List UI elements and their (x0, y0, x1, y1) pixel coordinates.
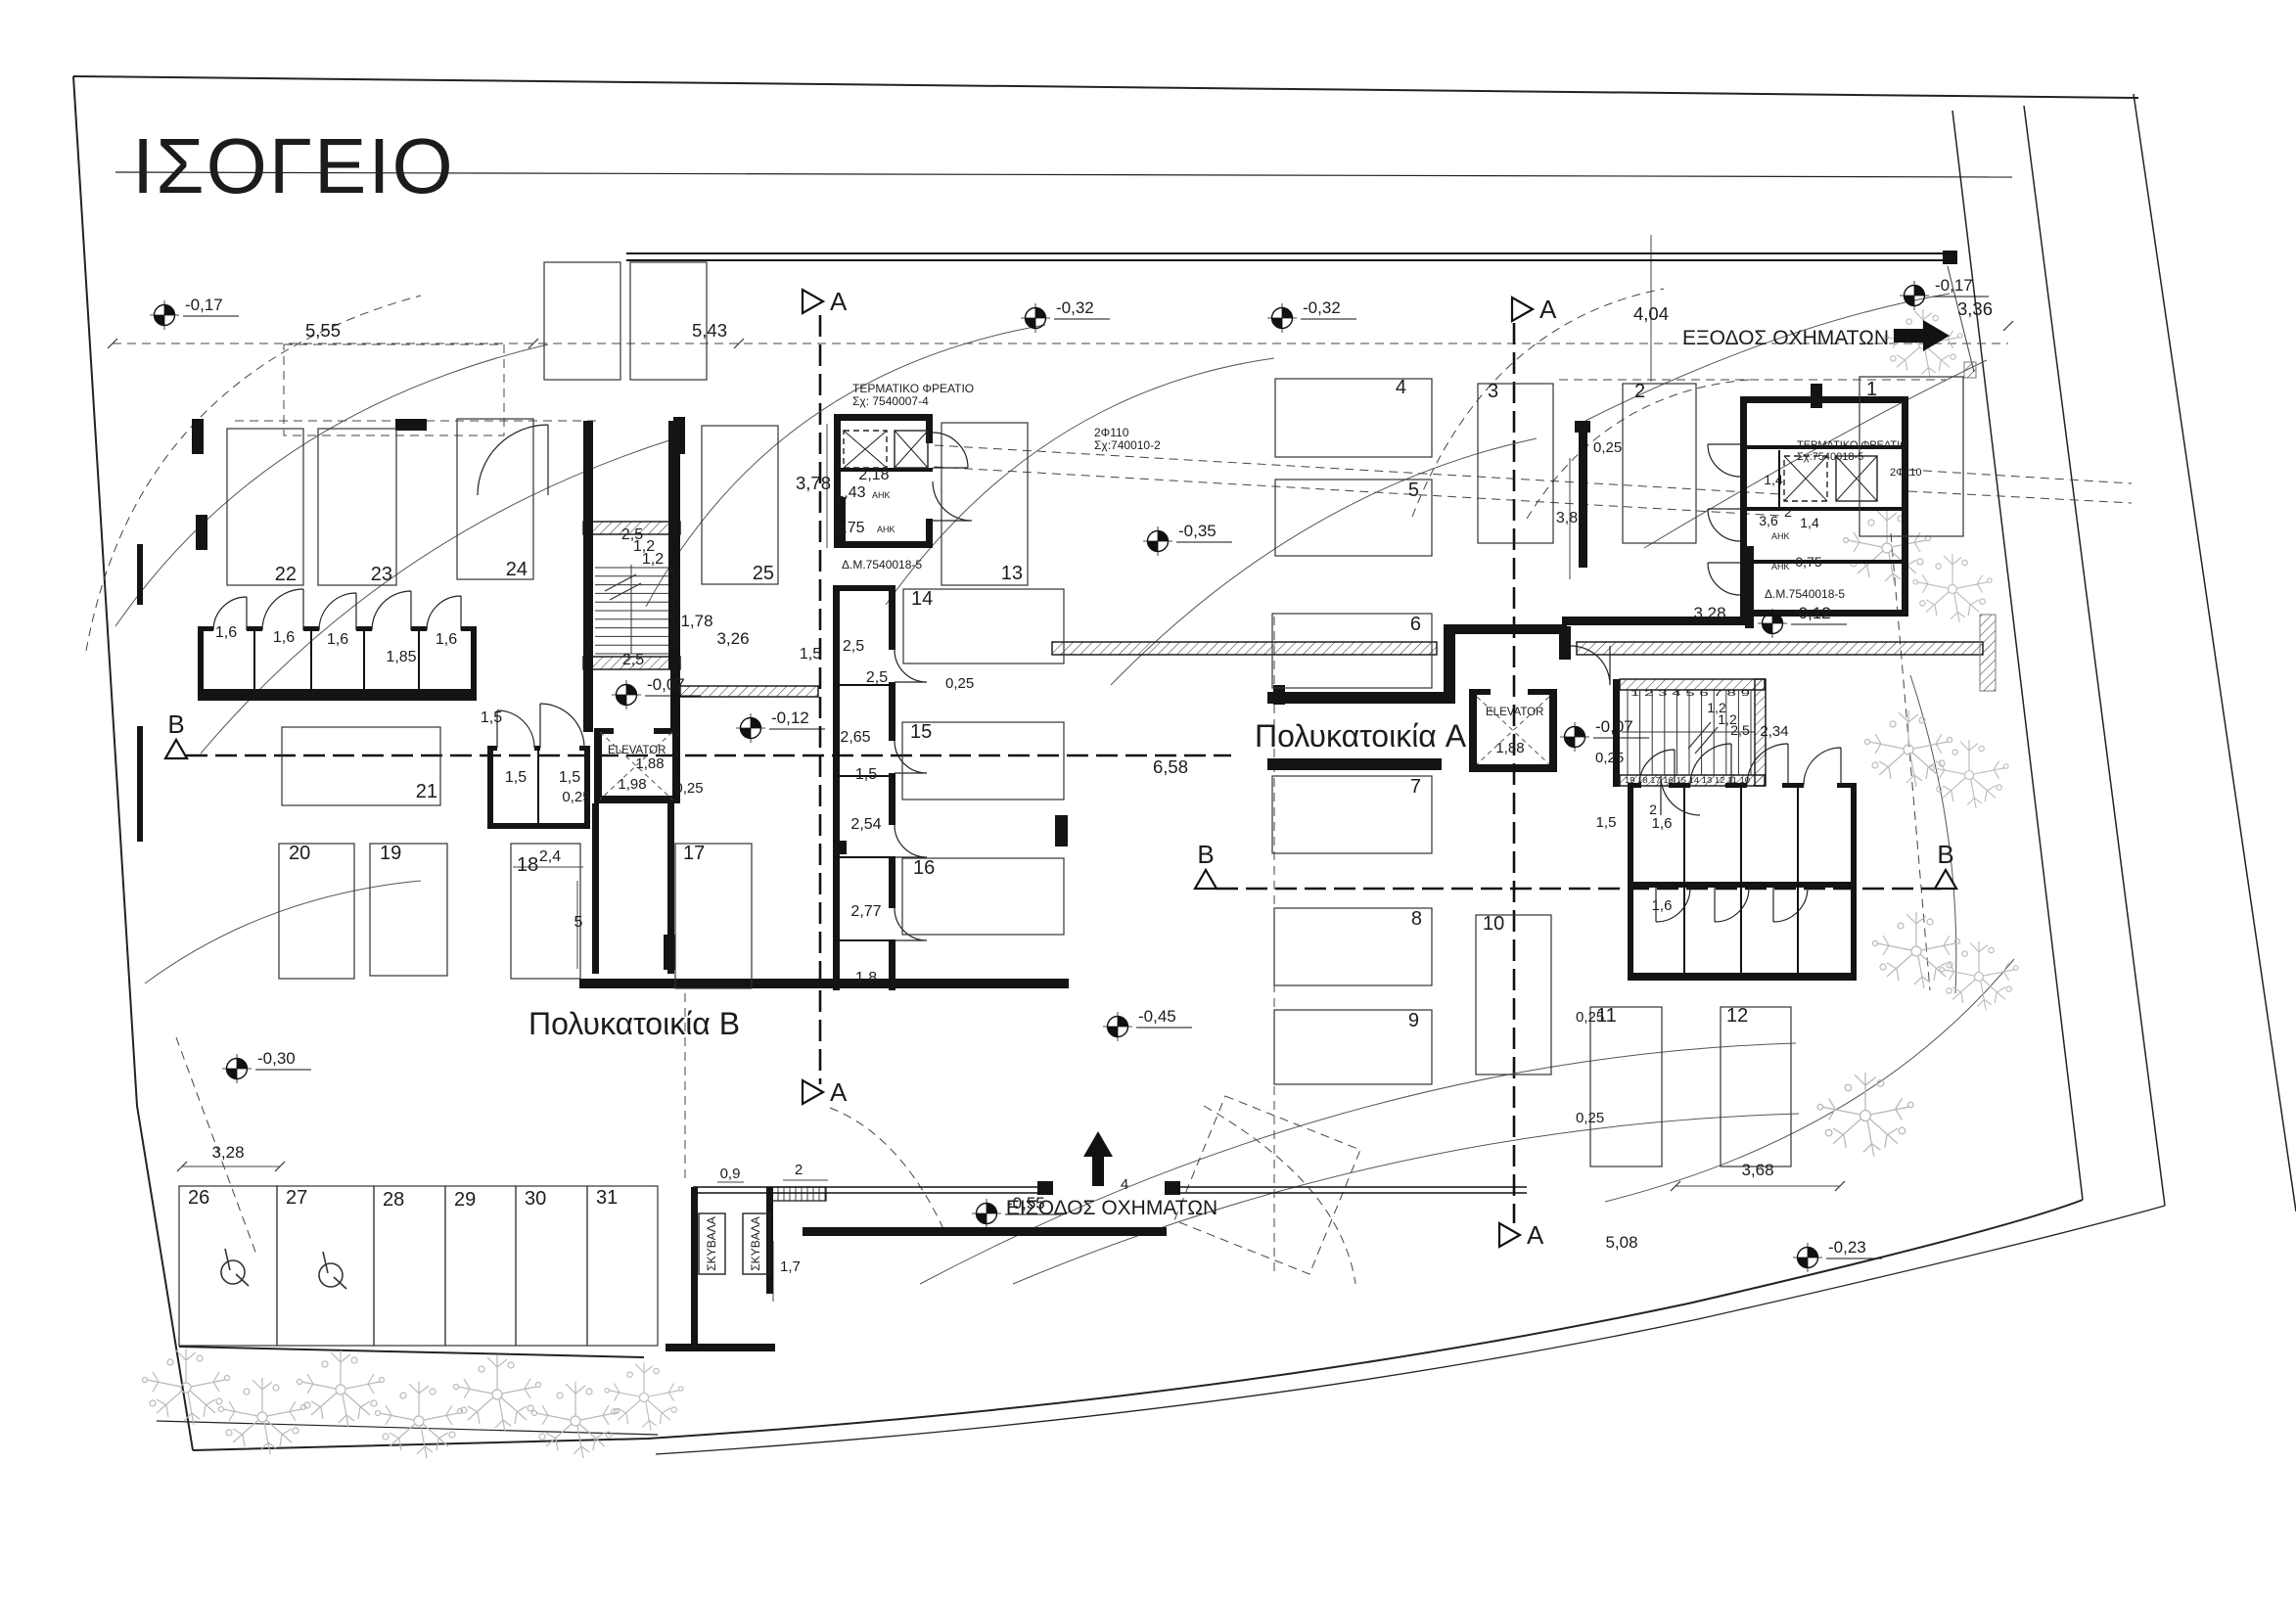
parking-space (179, 1186, 277, 1346)
ahk-label: ΑΗΚ (877, 525, 895, 534)
dimension-label: 0,25 (674, 780, 703, 797)
dimension-label: 2,65 (840, 729, 870, 746)
parking-space (1274, 908, 1432, 985)
garbage-room-label: ΣΚΥΒΑΛΑ (705, 1216, 718, 1270)
dimension-label: 3,26 (716, 629, 749, 648)
section-marker: B (1195, 840, 1217, 889)
parking-space (702, 426, 778, 584)
parking-number: 18 (517, 854, 538, 876)
dimension-label: 0,9 (720, 1166, 741, 1182)
dimension-label: 1,5 (505, 769, 527, 786)
dimension-label: 3,36 (1957, 298, 1993, 319)
spot-elevation-value: -0,45 (1138, 1007, 1176, 1026)
parking-number: 6 (1410, 614, 1421, 635)
building-b-label: Πολυκατοικία B (528, 1006, 740, 1041)
spot-elevation-icon (1143, 526, 1172, 556)
dimension-label: 4,04 (1633, 303, 1669, 324)
building-a-label: Πολυκατοικία A (1255, 718, 1467, 754)
section-marker: A (1512, 295, 1557, 324)
entrance-arrow-icon (1083, 1131, 1113, 1186)
dimension-label: 4 (1121, 1176, 1128, 1193)
dimension-label: 5,55 (305, 320, 341, 341)
exit-arrow-icon (1894, 320, 1950, 351)
terminal-shaft-ref: Σχ:7540018-5 (1797, 451, 1863, 463)
spot-elevation-value: -0,17 (1935, 276, 1973, 295)
dimension-label: 0,25 (1576, 1009, 1604, 1026)
svg-text:B: B (1937, 840, 1953, 869)
parking-number: 17 (683, 843, 705, 864)
dimension-label: 1,6 (1652, 815, 1673, 832)
parking-number: 30 (525, 1188, 546, 1210)
dimension-label: 2,5 (622, 652, 644, 668)
dimension-label: 1,6 (1652, 897, 1673, 914)
annotation-labels: ΤΕΡΜΑΤΙΚΟ ΦΡΕΑΤΙΟΣχ: 7540007-4Δ.Μ.754001… (586, 327, 1921, 1271)
dimension-label: 2 (1784, 504, 1792, 520)
terminal-shaft-ref: Σχ: 7540007-4 (852, 394, 929, 408)
parking-number: 2 (1634, 381, 1645, 402)
ahk-label: ΑΗΚ (872, 490, 891, 500)
tree-icon (298, 1350, 385, 1427)
dm-ref: Δ.Μ.7540018-5 (1765, 587, 1845, 601)
dimension-label: 1,6 (436, 631, 457, 648)
tree-icon (219, 1378, 306, 1454)
parking-number: 27 (286, 1187, 307, 1209)
svg-text:B: B (1197, 840, 1214, 869)
duct-ref: Σχ:740010-2 (1094, 438, 1161, 452)
parking-space (1623, 384, 1696, 543)
parking-space (1272, 776, 1432, 853)
section-markers: AAAABBB (165, 287, 1956, 1250)
svg-text:B: B (167, 709, 184, 739)
parking-number: 5 (1408, 480, 1419, 501)
spot-elevation-value: -0,32 (1056, 298, 1094, 317)
tree-icon (532, 1382, 620, 1458)
parking-space (1275, 379, 1432, 457)
parking-number: 31 (596, 1187, 618, 1209)
stair-step-numbers: 1 2 3 4 5 6 7 8 9 (1630, 689, 1751, 698)
tree-icon (1817, 1073, 1913, 1157)
section-marker: B (1935, 840, 1956, 889)
floor-plan-sheet: ΙΣΟΓΕΙΟ 12345678910111213141516171819202… (0, 0, 2296, 1601)
vehicle-exit-label: ΕΞΟΔΟΣ ΟΧΗΜΑΤΩΝ (1682, 327, 1889, 349)
dimension-label: 6,58 (1153, 756, 1188, 777)
parking-space (1721, 1007, 1791, 1166)
dimension-label: 1,7 (780, 1258, 801, 1275)
parking-space (318, 429, 396, 585)
dimension-label: 1,6 (273, 629, 295, 646)
spot-elevation-value: -0,07 (1595, 717, 1633, 736)
dimension-label: 2 (795, 1162, 803, 1178)
parking-number: 19 (380, 843, 401, 864)
parking-number: 23 (371, 564, 392, 585)
spot-elevation-icon (736, 713, 765, 743)
dimension-label: 0,25 (1595, 750, 1624, 766)
spot-elevation-icon (1267, 303, 1297, 333)
tree-icon (1873, 912, 1960, 988)
parking-number: 4 (1396, 377, 1406, 398)
dimension-label: 2,4 (539, 848, 561, 865)
parking-number: 29 (454, 1189, 476, 1211)
parking-space (675, 844, 752, 988)
dimension-label: 0,25 (1593, 439, 1622, 456)
parking-number: 24 (506, 559, 528, 580)
drawing-title: ΙΣΟΓΕΙΟ (132, 122, 455, 209)
spot-elevation-value: -0,23 (1828, 1238, 1866, 1257)
dimension-label: 1,5 (1596, 814, 1617, 831)
section-marker: B (165, 709, 187, 758)
spot-elevation-icon (972, 1199, 1001, 1228)
terminal-shaft-note: ΤΕΡΜΑΤΙΚΟ ΦΡΕΑΤΙΟ (852, 382, 974, 395)
dimension-label: 1,2 (642, 551, 664, 568)
dimension-label: 0,25 (562, 789, 590, 805)
tree-icon (376, 1382, 463, 1458)
dimension-label: 3,28 (211, 1143, 244, 1162)
dimension-label: 1,6 (327, 631, 348, 648)
parking-space (1478, 384, 1553, 543)
parking-number: 26 (188, 1187, 209, 1209)
parking-number: 15 (910, 721, 932, 743)
dimension-label: 2,54 (850, 816, 881, 833)
dimension-label: 3,28 (1693, 604, 1725, 622)
dimension-label: 1,5 (800, 646, 821, 663)
dimension-label: 2,18 (858, 467, 889, 483)
spot-elevation-value: -0,12 (1793, 604, 1831, 622)
dimension-label: 0,75 (1795, 554, 1821, 570)
parking-space (941, 423, 1028, 585)
dimension-label: 0,25 (945, 675, 974, 692)
tree-icon (1844, 509, 1931, 585)
parking-number: 20 (289, 843, 310, 864)
parking-space (457, 419, 533, 579)
dimension-label: 1,85 (386, 649, 416, 665)
vehicle-entrance-label: ΕΙΣΟΔΟΣ ΟΧΗΜΑΤΩΝ (1006, 1197, 1217, 1219)
tree-icon (454, 1355, 541, 1432)
duct-note: 2Φ110 (1094, 426, 1129, 439)
parking-space (1590, 1007, 1662, 1166)
svg-text:A: A (830, 1077, 848, 1107)
dimension-label: 1,6 (215, 624, 237, 641)
spot-elevation-icon (222, 1054, 252, 1083)
dimension-label: 1,8 (855, 970, 877, 986)
parking-number: 13 (1001, 563, 1023, 584)
dm-ref: Δ.Μ.7540018-5 (842, 558, 922, 572)
parking-number: 16 (913, 857, 935, 879)
dimension-label: 3,8 (1556, 510, 1578, 526)
dimension-label: 2,5 (1730, 722, 1750, 738)
parking-number: 21 (416, 781, 437, 802)
dimension-label: 1,88 (1495, 740, 1524, 756)
parking-number: 22 (275, 564, 297, 585)
dimension-label: 1,43 (835, 484, 865, 501)
terminal-shaft-note: ΤΕΡΜΑΤΙΚΟ ΦΡΕΑΤΙΟ (1797, 439, 1908, 451)
dimension-label: 1,4 (1764, 472, 1783, 487)
svg-text:A: A (830, 287, 848, 316)
parking-number: 9 (1408, 1010, 1419, 1031)
misc-symbols (221, 320, 1950, 1289)
garbage-room-label: ΣΚΥΒΑΛΑ (749, 1216, 762, 1270)
tree-icon (1940, 941, 2018, 1010)
dimension-label: 1,5 (855, 766, 877, 783)
svg-text:A: A (1539, 295, 1557, 324)
dimension-label: 5 (574, 914, 583, 931)
ahk-label: ΑΗΚ (1771, 562, 1790, 572)
floor-plan-drawing: ΙΣΟΓΕΙΟ 12345678910111213141516171819202… (0, 0, 2296, 1601)
dimension-label: 2,77 (850, 903, 881, 920)
dimension-label: 1,5 (481, 709, 502, 726)
dimension-label: 3,6 (1759, 513, 1778, 528)
section-marker: A (803, 287, 848, 316)
dimension-label: 3,68 (1741, 1161, 1773, 1179)
parking-number: 14 (911, 588, 933, 610)
duct-note: 2Φ110 (1890, 467, 1921, 479)
parking-number: 10 (1483, 913, 1504, 935)
dimension-label: 2,5 (866, 669, 888, 686)
elevator-label: ELEVATOR (1486, 707, 1543, 718)
accessible-parking-icon (221, 1249, 249, 1286)
dimension-label: 2,34 (1760, 723, 1788, 740)
parking-number: 25 (753, 563, 774, 584)
spot-elevation-value: -0,12 (771, 709, 809, 727)
spot-elevation-icon (1793, 1243, 1822, 1272)
stair-step-numbers: 19 18 17 16 15 14 13 12 11 10 (1625, 776, 1751, 785)
ahk-label: ΑΗΚ (1771, 531, 1790, 541)
stair-step-numbers: 1 2 3 4 5 6 7 8 9 (668, 567, 677, 650)
section-marker: A (1499, 1220, 1544, 1250)
spot-elevation-value: -0,32 (1303, 298, 1341, 317)
dimension-label: 5,08 (1605, 1233, 1637, 1252)
tree-icon (1913, 554, 1992, 622)
spot-elevation-value: -0,07 (647, 675, 685, 694)
dimension-label: 1,98 (618, 776, 646, 793)
parking-space (587, 1186, 658, 1346)
driveway-arcs (115, 294, 2014, 1284)
spot-elevation-value: -0,35 (1178, 522, 1217, 540)
dimension-label: 1,4 (1800, 515, 1819, 530)
dimension-label: 1,88 (635, 755, 664, 772)
construction-dashed-lines (86, 235, 2132, 1302)
parking-number: 1 (1866, 379, 1877, 400)
parking-space (1476, 915, 1551, 1075)
dimension-label: 1,5 (559, 769, 580, 786)
parking-number: 28 (383, 1189, 404, 1211)
elevator-label: ELEVATOR (608, 745, 666, 756)
spot-elevation-icon (612, 680, 641, 709)
elevator-shafts (600, 431, 1877, 800)
dimension-label: 3,78 (796, 473, 831, 493)
stair-step-numbers: 19 18 17 16 15 14 13 12 11 10 (586, 568, 595, 652)
dimension-label: 0,25 (1576, 1110, 1604, 1126)
section-marker: A (803, 1077, 848, 1107)
tree-icon (1865, 710, 1952, 787)
dimension-label: 2,5 (843, 638, 864, 655)
spot-elevation-value: -0,17 (185, 296, 223, 314)
dimension-label: 5,43 (692, 320, 727, 341)
accessible-parking-icon (319, 1252, 346, 1289)
spot-elevation-value: -0,30 (257, 1049, 296, 1068)
staircases (595, 565, 1755, 775)
spot-elevation-icon (150, 300, 179, 330)
parking-number: 8 (1411, 908, 1422, 930)
parking-number: 7 (1410, 776, 1421, 798)
dimension-label: 0,75 (834, 520, 864, 536)
parking-number: 3 (1488, 381, 1498, 402)
parking-space (516, 1186, 587, 1346)
dimension-label: 1,78 (680, 612, 712, 630)
svg-text:A: A (1527, 1220, 1544, 1250)
spot-elevation-icon (1560, 722, 1589, 752)
spot-elevation-icon (1103, 1012, 1132, 1041)
tree-icon (605, 1362, 683, 1431)
parking-number: 12 (1726, 1005, 1748, 1027)
spot-elevation-icon (1900, 281, 1929, 310)
